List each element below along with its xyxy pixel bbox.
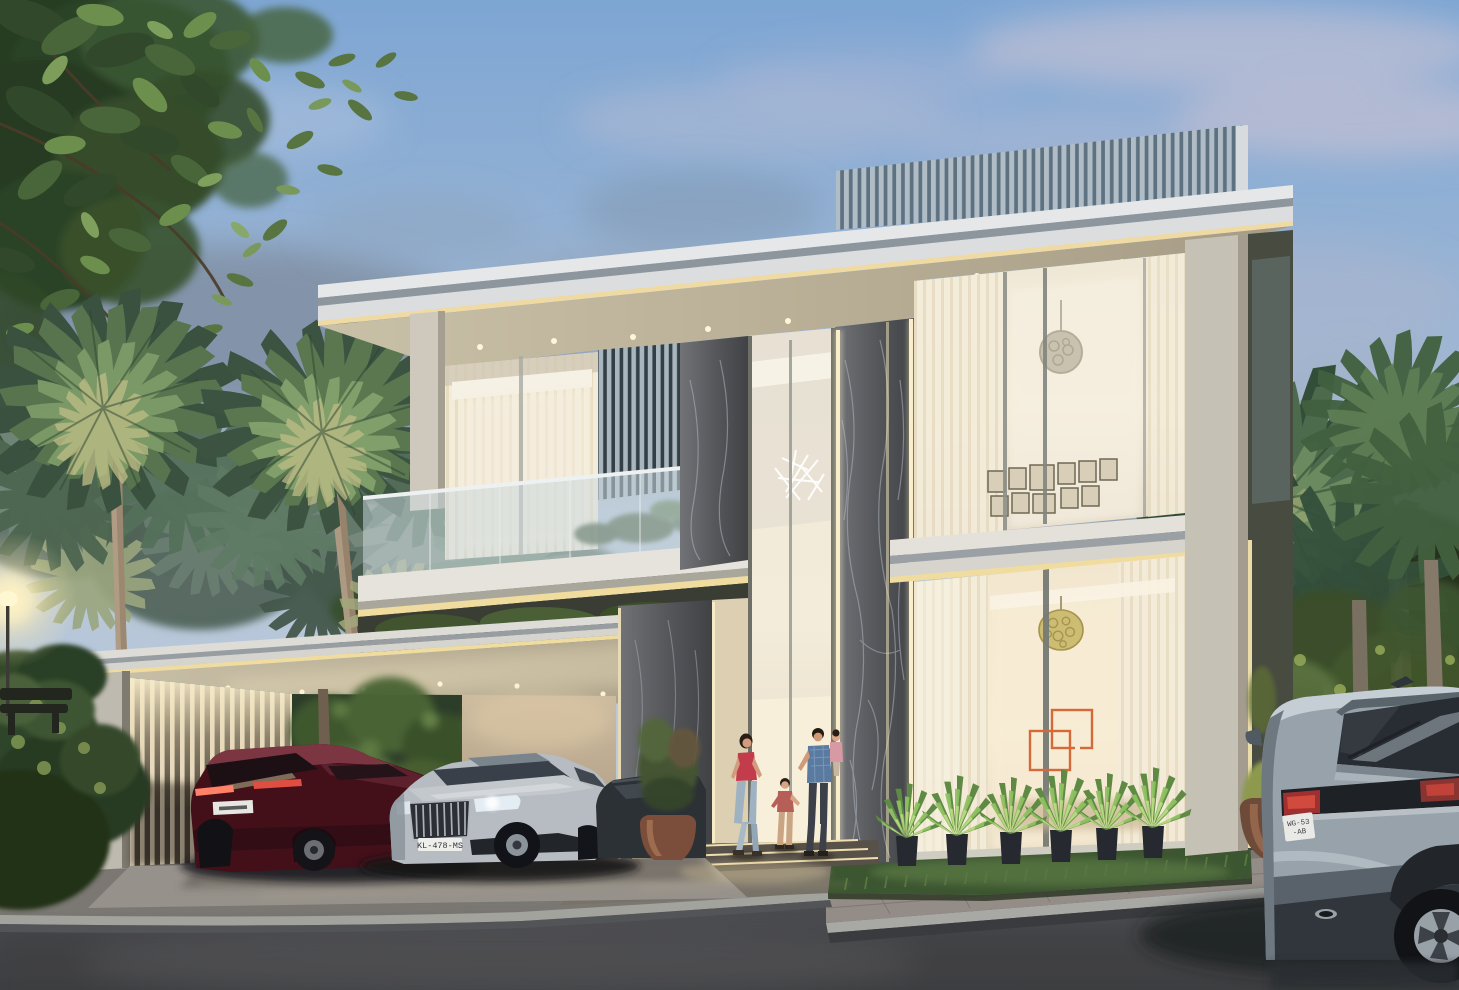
svg-text:KL-478-MS: KL-478-MS	[417, 841, 463, 851]
svg-text:-AB: -AB	[1292, 828, 1307, 838]
